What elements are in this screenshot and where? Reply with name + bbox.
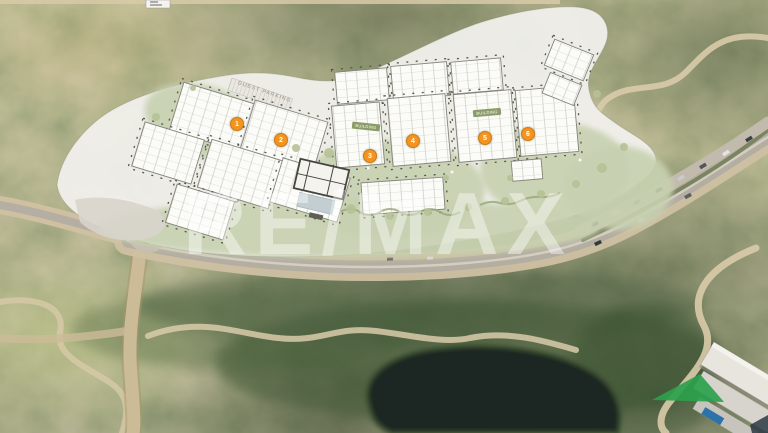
remax-watermark: RE/MAX [183, 180, 573, 268]
aerial-site-view: GUEST PARKING BUILDING BUILDING 1 2 3 4 … [0, 0, 768, 433]
unit-marker-6: 6 [521, 127, 535, 141]
unit-marker-2: 2 [274, 133, 288, 147]
unit-marker-1: 1 [230, 117, 244, 131]
unit-marker-5: 5 [478, 131, 492, 145]
unit-marker-3: 3 [363, 149, 377, 163]
unit-marker-4: 4 [406, 134, 420, 148]
